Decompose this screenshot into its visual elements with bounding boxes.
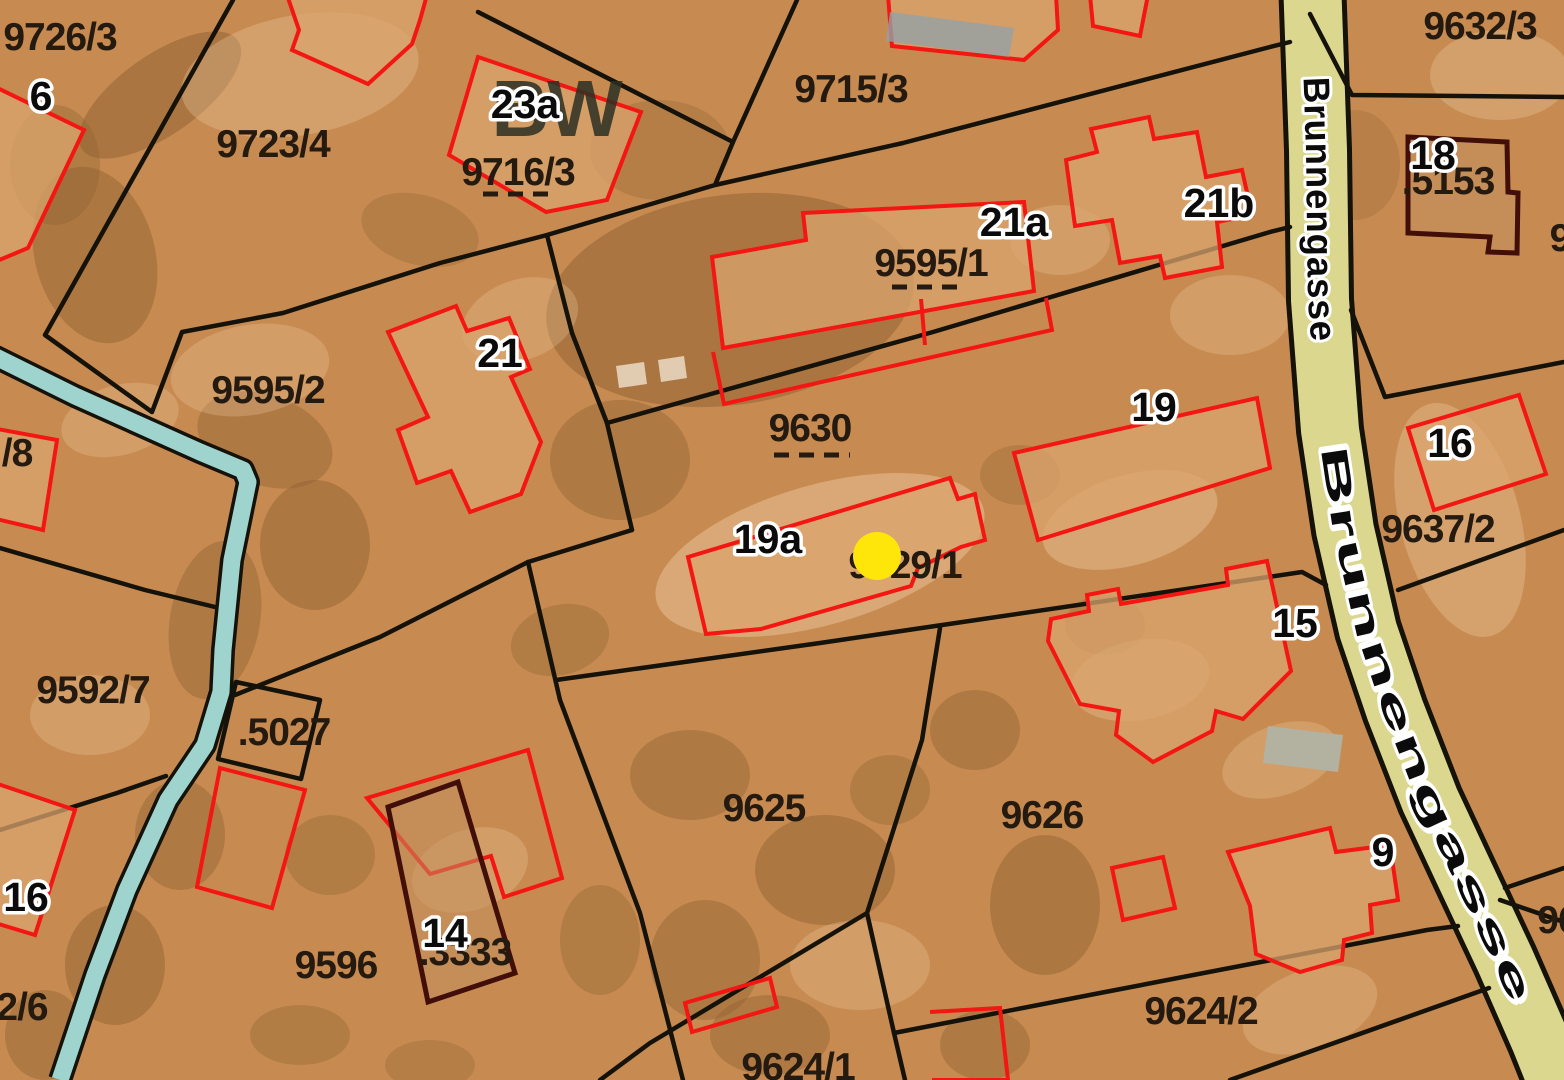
parcel-label-9595-2: 9595/2 — [211, 369, 325, 412]
parcel-label-9716-3: 9716/3 — [461, 151, 575, 194]
house-number-23a: 23a — [491, 81, 561, 127]
parcel-label-9632-3: 9632/3 — [1423, 5, 1537, 48]
cadastral-map: BW 9726/3 9723/4 9716/3 9715/3 9632/3 .5… — [0, 0, 1564, 1080]
parcel-label-9626: 9626 — [1001, 794, 1084, 837]
parcel-label-9624-1: 9624/1 — [741, 1046, 855, 1080]
house-number-16-left: 16 — [3, 874, 49, 920]
street-label-brunnengasse-top: Brunnengasse — [1295, 76, 1344, 343]
parcel-label-5027: .5027 — [238, 711, 331, 754]
parcel-label-9723-4: 9723/4 — [216, 123, 331, 166]
parcel-label-9715-3: 9715/3 — [794, 68, 908, 111]
house-number-6: 6 — [30, 73, 53, 119]
house-number-21: 21 — [477, 330, 523, 376]
parcel-label-8-partial: /8 — [2, 432, 33, 475]
house-number-14: 14 — [422, 910, 468, 956]
parcel-label-9625: 9625 — [723, 787, 806, 830]
parcel-label-9726-3: 9726/3 — [3, 16, 117, 59]
house-number-19a: 19a — [734, 516, 804, 562]
parcel-label-9592-7: 9592/7 — [36, 669, 149, 712]
parcel-label-9624-2: 9624/2 — [1144, 990, 1258, 1033]
location-marker — [853, 532, 901, 580]
parcel-label-partial-right-top: 9 — [1550, 217, 1564, 260]
svg-text:Brunnengasse: Brunnengasse — [1295, 76, 1344, 343]
house-number-9: 9 — [1372, 829, 1395, 875]
house-number-15: 15 — [1272, 600, 1318, 646]
parcel-label-9595-1: 9595/1 — [874, 242, 988, 285]
parcel-label-9630: 9630 — [769, 407, 852, 450]
map-canvas[interactable]: BW 9726/3 9723/4 9716/3 9715/3 9632/3 .5… — [0, 0, 1564, 1080]
house-number-18: 18 — [1410, 132, 1456, 178]
parcel-label-partial-right-bottom: 96 — [1537, 899, 1564, 942]
parcel-label-9637-2: 9637/2 — [1381, 508, 1495, 551]
house-number-19: 19 — [1131, 384, 1177, 430]
parcel-label-2-6-partial: 2/6 — [0, 986, 48, 1029]
house-number-21a: 21a — [980, 199, 1050, 245]
house-number-21b: 21b — [1184, 180, 1255, 226]
house-number-16-right: 16 — [1427, 420, 1473, 466]
parcel-label-9596: 9596 — [295, 944, 378, 987]
